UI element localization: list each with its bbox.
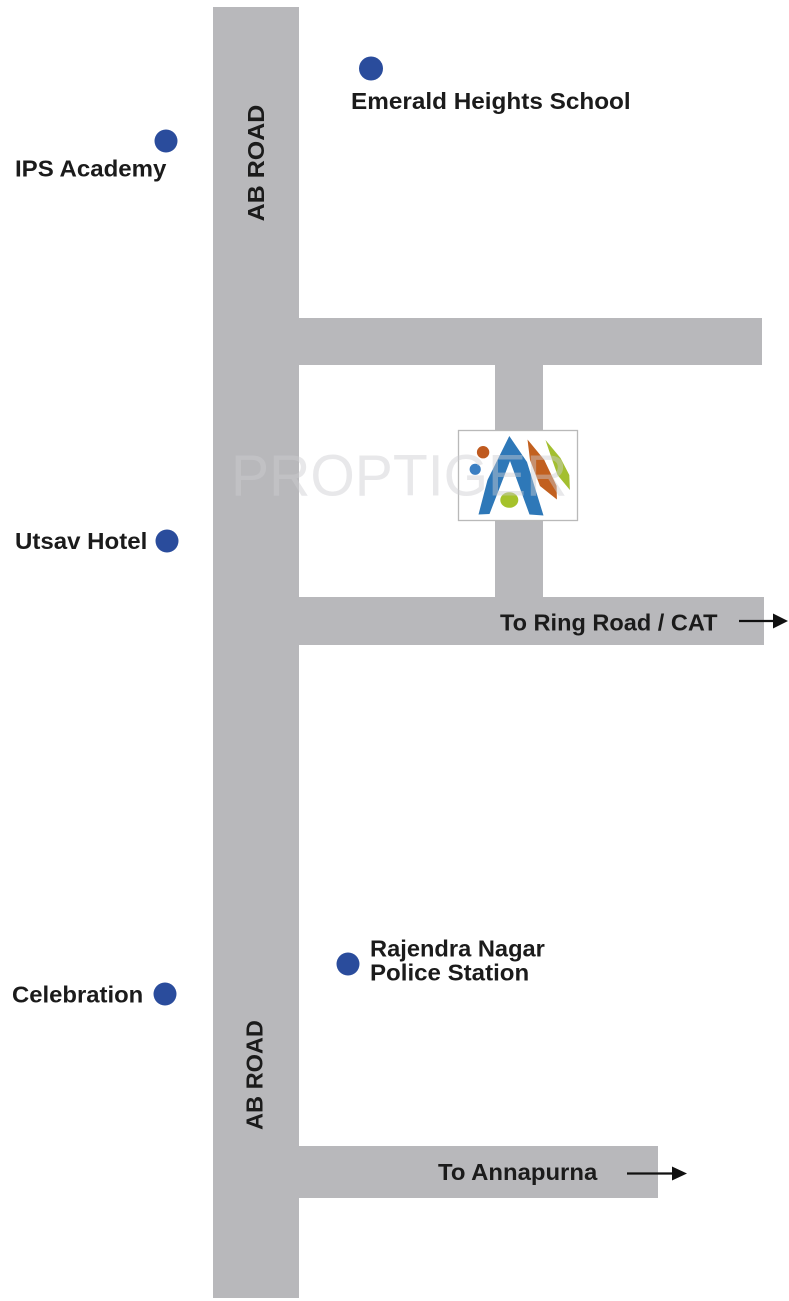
svg-text:Police Station: Police Station	[370, 960, 529, 987]
svg-text:AB ROAD: AB ROAD	[244, 105, 270, 222]
svg-text:Rajendra Nagar: Rajendra Nagar	[370, 936, 545, 962]
svg-text:PROPTIGER: PROPTIGER	[231, 444, 567, 508]
svg-text:Celebration: Celebration	[12, 983, 143, 1009]
svg-text:Emerald Heights School: Emerald Heights School	[351, 88, 631, 115]
svg-text:To Annapurna: To Annapurna	[438, 1160, 598, 1186]
svg-text:Utsav Hotel: Utsav Hotel	[15, 528, 147, 555]
svg-text:AB ROAD: AB ROAD	[242, 1020, 268, 1130]
svg-text:To Ring Road / CAT: To Ring Road / CAT	[500, 610, 718, 636]
svg-text:IPS Academy: IPS Academy	[15, 156, 167, 183]
